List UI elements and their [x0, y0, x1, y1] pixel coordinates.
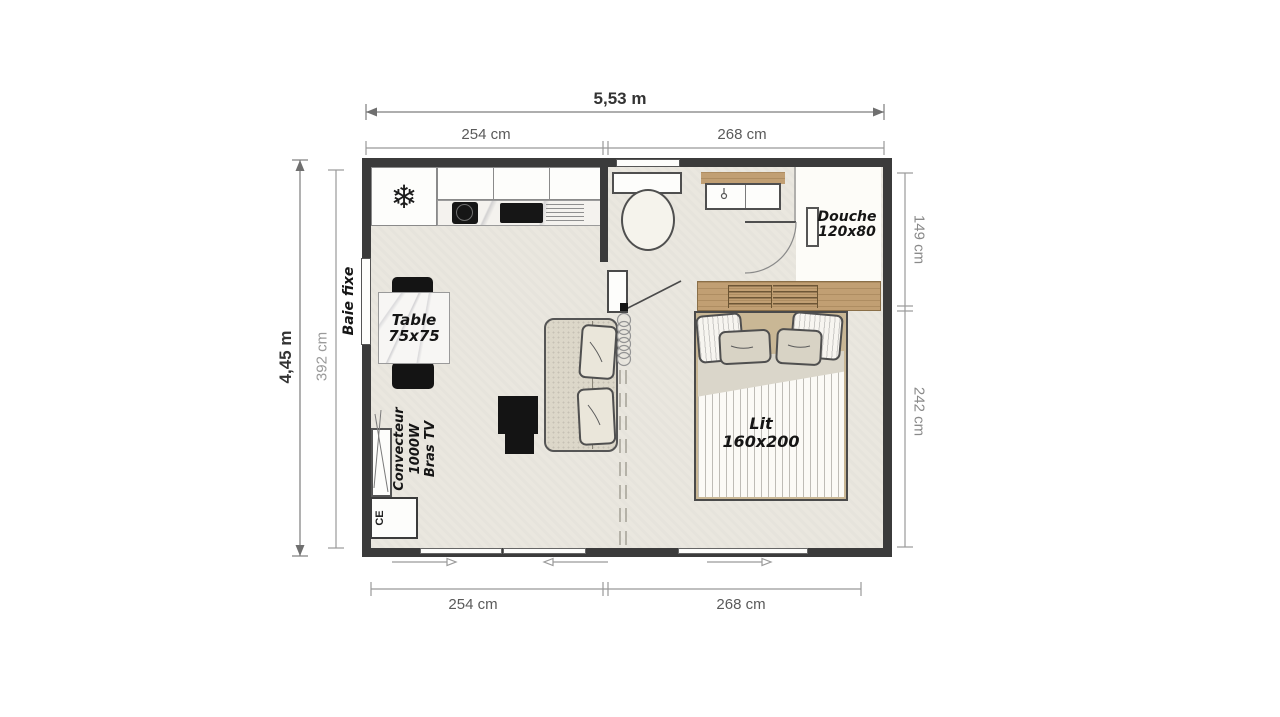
- sofa-cushion: [577, 387, 617, 446]
- sliding-arrows: [392, 559, 771, 566]
- bed-cushion: [718, 329, 772, 366]
- fixed-window-label: Baie fixe: [342, 251, 360, 351]
- dim-right-bottom: 242 cm: [911, 352, 928, 472]
- interior-wall: [600, 167, 608, 262]
- headboard-vent: [773, 285, 818, 308]
- dim-top-right: 268 cm: [682, 126, 802, 143]
- sliding-bay-window: [420, 548, 502, 554]
- sink-drainer: [546, 204, 584, 222]
- hob: [452, 202, 478, 224]
- dining-chair: [392, 362, 434, 389]
- sliding-bay-window: [678, 548, 808, 554]
- tv-unit-base: [505, 434, 534, 454]
- dim-right-top: 149 cm: [911, 180, 928, 300]
- washbasin-divider: [745, 185, 746, 208]
- headboard-shelf: [697, 281, 881, 311]
- dim-bottom-left: 254 cm: [413, 596, 533, 613]
- washbasin: [705, 183, 781, 210]
- tv-unit: [498, 396, 538, 434]
- toilet-bowl: [621, 189, 675, 251]
- kitchen-cabinet: [549, 167, 604, 200]
- bed-label: Lit 160x200: [716, 415, 806, 450]
- table-label: Table 75x75: [388, 312, 439, 345]
- dining-table: Table 75x75: [378, 292, 450, 364]
- sliding-bay-window: [503, 548, 586, 554]
- kitchen-cabinet: [437, 167, 494, 200]
- dim-top-left: 254 cm: [426, 126, 546, 143]
- bed-cushion: [775, 328, 823, 366]
- dim-interior-depth: 392 cm: [314, 292, 331, 422]
- floorplan-canvas: ❄ Douche 120x80 Lit 160x200: [0, 0, 1280, 717]
- shower-label: Douche 120x80: [814, 210, 880, 241]
- headboard-vent: [728, 285, 772, 308]
- snowflake-icon: ❄: [391, 181, 418, 213]
- fridge: ❄: [371, 167, 437, 226]
- fixed-window: [361, 258, 371, 345]
- hob-burner: [456, 204, 473, 221]
- ce-mark: CE: [374, 498, 394, 538]
- sofa-cushion: [578, 324, 618, 380]
- convector-heater: [371, 428, 392, 497]
- sink-basin: [500, 203, 543, 223]
- bathroom-window: [616, 159, 680, 167]
- dim-bottom-right: 268 cm: [681, 596, 801, 613]
- partition-door-panel: [607, 270, 628, 313]
- convector-label: Convecteur 1000W Bras TV: [392, 399, 440, 499]
- dim-overall-depth: 4,45 m: [276, 292, 296, 422]
- dim-overall-width: 5,53 m: [555, 89, 685, 109]
- kitchen-cabinet: [493, 167, 550, 200]
